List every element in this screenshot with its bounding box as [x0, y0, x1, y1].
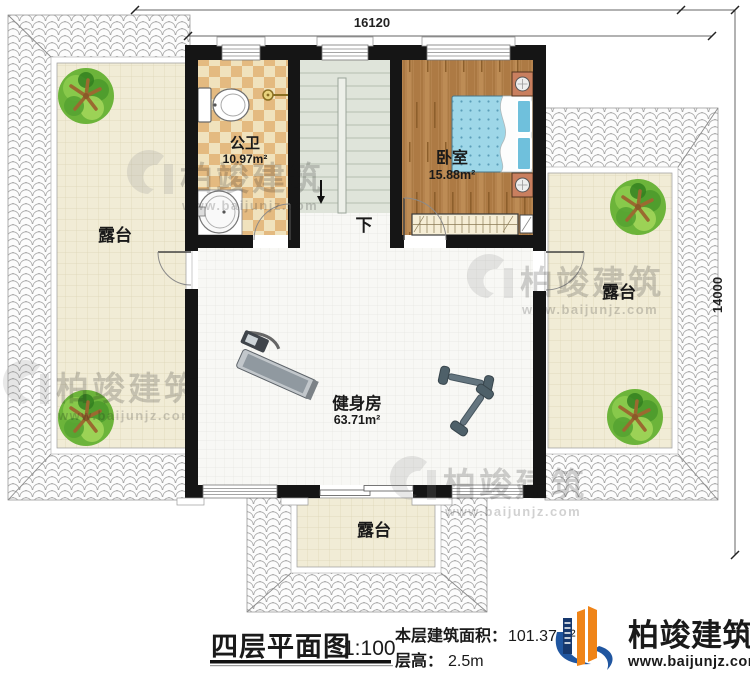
label-bedroom-name: 卧室 — [436, 148, 468, 167]
window — [217, 37, 265, 60]
svg-text:www.baijunjz.com: www.baijunjz.com — [521, 302, 658, 317]
label-bedroom-area: 15.88m² — [429, 168, 476, 182]
svg-text:www.baijunjz.com: www.baijunjz.com — [57, 408, 194, 423]
label-terrace-bottom: 露台 — [357, 520, 391, 540]
window — [422, 37, 515, 60]
floor-height-label: 层高： — [395, 651, 443, 670]
label-gym-area: 63.71m² — [334, 413, 381, 427]
brand-website: www.baijunjz.com — [627, 654, 750, 670]
building-area-label: 本层建筑面积： — [395, 626, 507, 645]
label-terrace-right: 露台 — [602, 282, 636, 302]
label-bathroom-name: 公卫 — [230, 135, 260, 152]
plan-scale: 1:100 — [343, 637, 396, 660]
gym-floor — [198, 213, 533, 485]
plan-title: 四层平面图 — [211, 632, 351, 662]
label-gym-name: 健身房 — [332, 393, 382, 413]
window — [317, 37, 373, 60]
tree-icon — [607, 389, 663, 445]
dimension-width-label: 16120 — [354, 15, 390, 30]
wardrobe-icon — [412, 214, 518, 235]
nightstand-icon — [512, 173, 533, 197]
svg-text:柏竣建筑: 柏竣建筑 — [56, 370, 200, 407]
floor-plan-drawing: 柏竣建筑 www.baijunjz.com 柏竣建筑 www.baijunjz.… — [0, 0, 750, 676]
floor-height-value: 2.5m — [448, 653, 484, 670]
tree-icon — [58, 68, 114, 124]
tree-icon — [610, 179, 666, 235]
corner-cabinet-icon — [520, 215, 533, 233]
stair-railing — [338, 78, 346, 213]
floor-plan-canvas: 柏竣建筑 www.baijunjz.com 柏竣建筑 www.baijunjz.… — [0, 0, 750, 676]
svg-text:www.baijunjz.com: www.baijunjz.com — [181, 198, 318, 213]
dimension-depth-label: 14000 — [710, 277, 725, 313]
svg-text:柏竣建筑: 柏竣建筑 — [443, 466, 587, 503]
brand-name: 柏竣建筑 — [628, 618, 750, 653]
label-terrace-left: 露台 — [98, 225, 132, 245]
label-bathroom-area: 10.97m² — [223, 152, 268, 166]
svg-text:柏竣建筑: 柏竣建筑 — [520, 264, 664, 301]
svg-text:www.baijunjz.com: www.baijunjz.com — [444, 504, 581, 519]
label-stair-down: 下 — [356, 216, 373, 235]
nightstand-icon — [512, 72, 533, 96]
toilet-icon — [198, 88, 249, 122]
